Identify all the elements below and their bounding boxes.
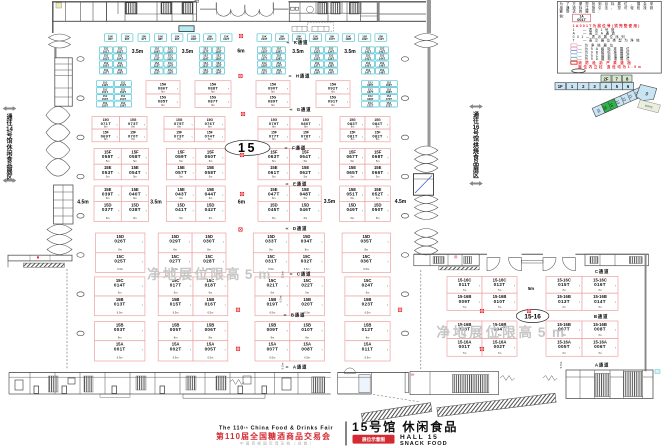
svg-text:2F: 2F <box>604 76 609 81</box>
svg-text:展: 展 <box>473 166 479 174</box>
svg-text:╮: ╮ <box>361 124 363 126</box>
svg-text:154T: 154T <box>120 97 126 101</box>
svg-text:3.5m: 3.5m <box>324 199 336 205</box>
svg-text:B通道: B通道 <box>291 312 305 319</box>
svg-text:113T: 113T <box>154 64 160 68</box>
svg-text:019T: 019T <box>267 302 279 307</box>
svg-text:╮: ╮ <box>387 261 389 263</box>
svg-text:8m: 8m <box>272 137 276 141</box>
svg-text:8m: 8m <box>104 124 108 128</box>
svg-text:╮: ╮ <box>145 210 147 212</box>
svg-text:062T: 062T <box>300 170 312 175</box>
svg-text:016T: 016T <box>205 302 217 307</box>
svg-text:048T: 048T <box>300 192 312 197</box>
svg-text:╮: ╮ <box>321 261 323 263</box>
svg-text:╮: ╮ <box>321 285 323 287</box>
svg-text:休: 休 <box>5 143 13 151</box>
svg-text:103T: 103T <box>103 56 109 60</box>
svg-text:140T: 140T <box>328 71 334 75</box>
svg-text:号: 号 <box>473 129 479 137</box>
svg-text:036T: 036T <box>360 258 372 263</box>
svg-text:6m: 6m <box>350 216 354 220</box>
svg-text:006T: 006T <box>594 344 606 349</box>
svg-text:169T: 169T <box>367 97 373 101</box>
svg-text:6m: 6m <box>237 48 245 54</box>
svg-text:051T: 051T <box>346 192 358 197</box>
svg-text:╮: ╮ <box>361 157 363 159</box>
svg-text:≪: ≪ <box>285 365 288 369</box>
svg-text:7m: 7m <box>598 288 602 292</box>
svg-text:╮: ╮ <box>578 285 580 287</box>
svg-text:8m: 8m <box>351 124 355 128</box>
svg-text:╮: ╮ <box>614 347 616 349</box>
svg-text:F通道: F通道 <box>292 144 306 151</box>
svg-text:地: 地 <box>453 324 467 340</box>
svg-text:╮: ╮ <box>387 194 389 196</box>
svg-text:8m: 8m <box>118 335 122 339</box>
svg-text:例：: 例： <box>560 14 567 19</box>
svg-text:╮: ╮ <box>478 302 480 304</box>
svg-text:142T: 142T <box>379 49 385 53</box>
svg-text:8m: 8m <box>209 335 213 339</box>
svg-text:058T: 058T <box>205 170 217 175</box>
svg-text:7m: 7m <box>598 305 602 309</box>
svg-text:047T: 047T <box>268 192 280 197</box>
svg-text:展: 展 <box>6 168 12 176</box>
svg-text:╮: ╮ <box>286 349 288 351</box>
svg-text:╮: ╮ <box>285 261 287 263</box>
svg-text:区: 区 <box>473 172 479 180</box>
svg-text:8m: 8m <box>177 137 181 141</box>
svg-text:╮: ╮ <box>176 101 178 103</box>
svg-text:001T: 001T <box>114 346 126 351</box>
svg-text:≪: ≪ <box>284 146 287 150</box>
svg-text:129T: 129T <box>261 64 267 68</box>
svg-text:6m: 6m <box>161 103 165 107</box>
svg-text:022T: 022T <box>301 283 313 288</box>
svg-text:╮: ╮ <box>286 101 288 103</box>
svg-text:6m: 6m <box>211 89 215 93</box>
svg-text:7m: 7m <box>463 351 467 355</box>
svg-text:111T: 111T <box>154 56 160 60</box>
svg-text:8m: 8m <box>351 137 355 141</box>
svg-text:95T: 95T <box>108 37 113 41</box>
svg-text:╮: ╮ <box>317 157 319 159</box>
svg-text:B通道: B通道 <box>594 313 608 320</box>
svg-text:5: 5 <box>245 267 253 282</box>
svg-text:130T: 130T <box>276 64 282 68</box>
svg-text:040T: 040T <box>129 192 141 197</box>
svg-text:展位内立柱 直径均为1.5m: 展位内立柱 直径均为1.5m <box>577 64 642 69</box>
svg-text:限: 限 <box>502 325 516 340</box>
svg-text:╮: ╮ <box>513 302 515 304</box>
svg-text:5m: 5m <box>272 174 276 178</box>
svg-text:H通道: H通道 <box>296 72 310 79</box>
svg-text:╮: ╮ <box>192 210 194 212</box>
svg-text:╮: ╮ <box>286 124 288 126</box>
svg-text:6m: 6m <box>211 103 215 107</box>
svg-text:3.5m: 3.5m <box>132 49 144 55</box>
svg-text:╮: ╮ <box>614 302 616 304</box>
svg-text:001T: 001T <box>577 18 586 22</box>
svg-text:152T: 152T <box>120 90 126 94</box>
svg-text:007T: 007T <box>267 346 279 351</box>
svg-text:5m: 5m <box>376 174 380 178</box>
svg-text:╮: ╮ <box>286 285 288 287</box>
svg-text:121T: 121T <box>202 64 208 68</box>
svg-text:╮: ╮ <box>513 285 515 287</box>
svg-text:037T: 037T <box>102 207 114 212</box>
svg-text:╮: ╮ <box>578 329 580 331</box>
svg-text:003T: 003T <box>114 327 126 332</box>
svg-text:117T: 117T <box>203 49 209 53</box>
svg-text:T —表示展位类型为净地: T —表示展位类型为净地 <box>573 38 642 43</box>
svg-text:╮: ╮ <box>141 304 143 306</box>
svg-text:8m: 8m <box>304 137 308 141</box>
svg-text:╮: ╮ <box>116 124 118 126</box>
svg-text:6m: 6m <box>350 196 354 200</box>
svg-text:C通道: C通道 <box>297 271 311 278</box>
svg-text:8m: 8m <box>174 335 178 339</box>
svg-text:035T: 035T <box>360 239 372 244</box>
svg-text:╮: ╮ <box>387 241 389 243</box>
svg-text:D通道: D通道 <box>293 225 307 232</box>
svg-text:6.5m: 6.5m <box>117 310 123 314</box>
svg-text:7m: 7m <box>498 288 502 292</box>
svg-text:017T: 017T <box>170 283 182 288</box>
svg-text:╮: ╮ <box>221 137 223 139</box>
svg-text:065T: 065T <box>346 170 358 175</box>
svg-text:6m: 6m <box>106 216 110 220</box>
svg-text:122T: 122T <box>215 64 221 68</box>
svg-text:╮: ╮ <box>221 194 223 196</box>
svg-text:99T: 99T <box>175 37 180 41</box>
svg-text:K通道: K通道 <box>294 39 308 46</box>
svg-text:150T: 150T <box>120 83 126 87</box>
svg-text:╮: ╮ <box>191 124 193 126</box>
svg-text:011T: 011T <box>459 282 470 287</box>
svg-text:027T: 027T <box>169 258 181 263</box>
svg-text:╮: ╮ <box>221 173 223 175</box>
svg-text:5: 5 <box>538 325 546 340</box>
svg-text:G通道: G通道 <box>297 106 312 113</box>
svg-text:8m: 8m <box>364 247 368 251</box>
svg-text:6.5m: 6.5m <box>365 310 371 314</box>
svg-text:5m: 5m <box>376 159 380 163</box>
svg-text:067T: 067T <box>346 154 358 159</box>
svg-text:╮: ╮ <box>221 124 223 126</box>
svg-text:165T: 165T <box>367 83 373 87</box>
svg-text:015T: 015T <box>170 302 182 307</box>
svg-text:╮: ╮ <box>192 173 194 175</box>
svg-text:020T: 020T <box>301 302 313 307</box>
svg-text:5m: 5m <box>304 174 308 178</box>
svg-text:014T: 014T <box>594 299 606 304</box>
svg-text:8m: 8m <box>376 137 380 141</box>
svg-text:5m: 5m <box>350 174 354 178</box>
svg-text:6m: 6m <box>304 216 308 220</box>
svg-text:╮: ╮ <box>176 88 178 90</box>
svg-text:134T: 134T <box>328 49 334 53</box>
svg-text:╮: ╮ <box>222 261 224 263</box>
svg-text:╮: ╮ <box>117 210 119 212</box>
svg-text:104T: 104T <box>117 56 123 60</box>
svg-text:4.5m: 4.5m <box>395 199 407 205</box>
svg-text:066T: 066T <box>372 170 384 175</box>
svg-text:高: 高 <box>226 266 240 282</box>
svg-text:041T: 041T <box>175 207 187 212</box>
svg-text:净: 净 <box>436 324 450 340</box>
svg-text:110T: 110T <box>167 49 173 53</box>
svg-text:8m: 8m <box>305 335 309 339</box>
svg-text:6m: 6m <box>174 291 178 295</box>
svg-text:156T: 156T <box>120 104 126 108</box>
svg-text:展: 展 <box>179 267 193 282</box>
svg-text:8m: 8m <box>118 247 122 251</box>
svg-text:125T: 125T <box>261 49 267 53</box>
svg-text:171T: 171T <box>367 104 373 108</box>
svg-text:m: m <box>258 267 270 282</box>
svg-text:002T: 002T <box>170 346 182 351</box>
svg-text:136T: 136T <box>328 56 334 60</box>
svg-text:039T: 039T <box>102 192 114 197</box>
svg-text:≪: ≪ <box>283 313 286 317</box>
svg-text:╮: ╮ <box>386 304 388 306</box>
svg-text:012T: 012T <box>362 327 374 332</box>
svg-text:8m: 8m <box>271 335 275 339</box>
svg-text:5m: 5m <box>179 159 183 163</box>
svg-text:103T: 103T <box>261 37 267 41</box>
svg-text:≪: ≪ <box>288 74 291 78</box>
svg-text:138T: 138T <box>328 64 334 68</box>
svg-text:╮: ╮ <box>141 261 143 263</box>
svg-text:031T: 031T <box>265 258 277 263</box>
svg-text:015T: 015T <box>558 282 570 287</box>
svg-text:112T: 112T <box>167 56 173 60</box>
svg-text:╮: ╮ <box>143 137 145 139</box>
svg-text:╮: ╮ <box>221 157 223 159</box>
svg-text:155T: 155T <box>102 104 108 108</box>
svg-text:005T: 005T <box>558 344 570 349</box>
svg-text:016T: 016T <box>594 282 606 287</box>
svg-text:╮: ╮ <box>141 330 143 332</box>
svg-text:6.5m: 6.5m <box>270 356 276 360</box>
svg-text:105T: 105T <box>103 64 109 68</box>
svg-text:号: 号 <box>6 131 12 139</box>
svg-text:通: 通 <box>6 113 12 121</box>
svg-text:109T: 109T <box>154 49 160 53</box>
svg-text:149T: 149T <box>102 83 108 87</box>
svg-text:115T: 115T <box>154 71 160 75</box>
svg-text:151T: 151T <box>102 90 108 94</box>
svg-text:╮: ╮ <box>386 349 388 351</box>
svg-text:馆: 馆 <box>473 135 479 143</box>
svg-text:046T: 046T <box>300 207 312 212</box>
svg-text:6m: 6m <box>209 196 213 200</box>
svg-text:3.5m: 3.5m <box>292 49 304 55</box>
svg-text:6.5m: 6.5m <box>304 356 310 360</box>
svg-text:7m: 7m <box>562 351 566 355</box>
svg-text:116T: 116T <box>167 71 173 75</box>
svg-text:╮: ╮ <box>318 124 320 126</box>
svg-text:054T: 054T <box>129 170 141 175</box>
svg-text:7m: 7m <box>562 305 566 309</box>
svg-text:净: 净 <box>147 266 161 282</box>
svg-text:028T: 028T <box>203 258 215 263</box>
svg-text:6.5m: 6.5m <box>279 295 283 302</box>
svg-text:15号馆 休闲食品: 15号馆 休闲食品 <box>352 419 458 434</box>
svg-text:╮: ╮ <box>189 349 191 351</box>
svg-text:167T: 167T <box>367 90 373 94</box>
svg-text:地: 地 <box>163 266 177 282</box>
svg-text:6.5m: 6.5m <box>208 310 214 314</box>
svg-text:6m: 6m <box>305 291 309 295</box>
svg-text:要到达的展位：: 要到达的展位： <box>560 9 605 14</box>
svg-text:6m: 6m <box>209 291 213 295</box>
svg-text:8m: 8m <box>272 124 276 128</box>
svg-text:5m: 5m <box>106 159 110 163</box>
svg-text:145T: 145T <box>365 64 371 68</box>
svg-text:6.5m: 6.5m <box>117 267 123 271</box>
svg-text:SNACK FOOD: SNACK FOOD <box>400 441 448 446</box>
svg-text:6m: 6m <box>238 199 246 205</box>
svg-text:6m: 6m <box>118 291 122 295</box>
svg-text:限: 限 <box>210 267 224 282</box>
svg-text:15-16: 15-16 <box>524 314 541 321</box>
svg-text:7m: 7m <box>598 351 602 355</box>
svg-text:≪: ≪ <box>286 41 289 45</box>
svg-text:╮: ╮ <box>286 173 288 175</box>
svg-text:食: 食 <box>5 155 13 163</box>
svg-text:通: 通 <box>473 111 479 119</box>
svg-text:063T: 063T <box>268 154 280 159</box>
svg-text:╮: ╮ <box>145 157 147 159</box>
svg-text:137T: 137T <box>314 64 320 68</box>
svg-text:╮: ╮ <box>321 349 323 351</box>
svg-text:╮: ╮ <box>614 329 616 331</box>
svg-text:╮: ╮ <box>117 173 119 175</box>
svg-text:053T: 053T <box>102 170 114 175</box>
svg-text:8m: 8m <box>173 247 177 251</box>
svg-text:╮: ╮ <box>189 285 191 287</box>
svg-text:5.5m: 5.5m <box>281 362 285 369</box>
svg-text:6.5m: 6.5m <box>304 267 310 271</box>
svg-text:109T: 109T <box>362 37 368 41</box>
svg-text:005T: 005T <box>205 346 217 351</box>
svg-text:14: 14 <box>6 127 13 133</box>
svg-text:╮: ╮ <box>224 304 226 306</box>
svg-text:013T: 013T <box>558 299 570 304</box>
svg-text:108T: 108T <box>345 37 351 41</box>
svg-text:8m: 8m <box>177 124 181 128</box>
svg-text:021T: 021T <box>267 283 279 288</box>
svg-text:030T: 030T <box>203 239 215 244</box>
svg-text:╮: ╮ <box>141 349 143 351</box>
svg-text:045T: 045T <box>268 207 280 212</box>
svg-text:106T: 106T <box>117 64 123 68</box>
svg-text:8m: 8m <box>131 124 135 128</box>
svg-text:050T: 050T <box>372 207 384 212</box>
svg-text:057T: 057T <box>175 170 187 175</box>
svg-text:╮: ╮ <box>188 241 190 243</box>
svg-text:╮: ╮ <box>321 241 323 243</box>
svg-text:5.5m: 5.5m <box>281 271 285 278</box>
svg-text:6m: 6m <box>331 103 335 107</box>
svg-text:4.5m: 4.5m <box>77 199 89 205</box>
svg-text:╮: ╮ <box>321 330 323 332</box>
svg-text:6.5m: 6.5m <box>173 310 179 314</box>
svg-text:96T: 96T <box>125 37 130 41</box>
svg-text:7m: 7m <box>498 351 502 355</box>
svg-text:126T: 126T <box>276 49 282 53</box>
svg-text:食: 食 <box>472 153 480 161</box>
svg-text:╮: ╮ <box>386 124 388 126</box>
svg-text:068T: 068T <box>372 154 384 159</box>
svg-text:008T: 008T <box>301 346 313 351</box>
svg-text:168T: 168T <box>386 90 392 94</box>
svg-text:6.5m: 6.5m <box>270 310 276 314</box>
svg-text:╮: ╮ <box>286 157 288 159</box>
svg-text:E通道: E通道 <box>293 180 307 187</box>
svg-text:060T: 060T <box>205 154 217 159</box>
svg-text:107T: 107T <box>103 71 109 75</box>
svg-text:╮: ╮ <box>317 210 319 212</box>
svg-text:114T: 114T <box>167 64 173 68</box>
svg-text:╮: ╮ <box>386 285 388 287</box>
svg-text:106T: 106T <box>312 37 318 41</box>
svg-text:3.5m: 3.5m <box>344 49 356 55</box>
svg-text:╮: ╮ <box>361 194 363 196</box>
svg-text:008T: 008T <box>594 327 606 332</box>
svg-text:The 110th China Food & Drinks: The 110th China Food & Drinks Fair <box>219 425 333 431</box>
svg-text:002T: 002T <box>494 344 506 349</box>
svg-text:6m: 6m <box>209 216 213 220</box>
svg-text:╮: ╮ <box>478 285 480 287</box>
svg-text:≪: ≪ <box>285 227 288 231</box>
svg-text:6m: 6m <box>376 216 380 220</box>
svg-text:╮: ╮ <box>224 349 226 351</box>
svg-text:146T: 146T <box>379 64 385 68</box>
svg-text:╮: ╮ <box>286 137 288 139</box>
svg-text:╮: ╮ <box>614 285 616 287</box>
svg-text:8m: 8m <box>305 247 309 251</box>
svg-text:╮: ╮ <box>386 137 388 139</box>
svg-text:170T: 170T <box>386 97 392 101</box>
svg-text:055T: 055T <box>102 154 114 159</box>
svg-text:010T: 010T <box>301 327 313 332</box>
svg-text:高: 高 <box>518 324 532 340</box>
svg-text:7m: 7m <box>598 333 602 337</box>
svg-text:中国西部国际博览城（成都）: 中国西部国际博览城（成都） <box>240 440 315 445</box>
svg-text:147T: 147T <box>365 71 371 75</box>
svg-text:6m: 6m <box>272 216 276 220</box>
svg-text:╮: ╮ <box>222 241 224 243</box>
svg-text:馆: 馆 <box>6 137 12 145</box>
svg-text:╮: ╮ <box>387 157 389 159</box>
svg-text:╮: ╮ <box>361 137 363 139</box>
svg-text:╮: ╮ <box>578 347 580 349</box>
svg-text:往: 往 <box>473 117 479 125</box>
svg-text:╮: ╮ <box>143 124 145 126</box>
svg-text:153T: 153T <box>102 97 108 101</box>
svg-text:141T: 141T <box>365 49 371 53</box>
svg-text:╮: ╮ <box>221 210 223 212</box>
svg-text:╮: ╮ <box>346 88 348 90</box>
svg-text:101T: 101T <box>207 37 213 41</box>
svg-text:3.5m: 3.5m <box>150 199 162 205</box>
svg-text:╮: ╮ <box>117 157 119 159</box>
svg-text:6m: 6m <box>179 216 183 220</box>
